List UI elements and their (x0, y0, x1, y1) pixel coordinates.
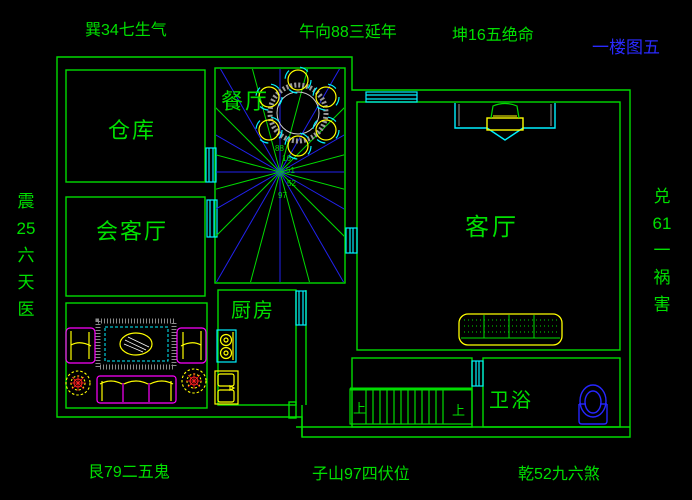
stove (217, 330, 236, 362)
sheet-title: 一楼图五 (592, 33, 660, 58)
compass-label-xun: 巽34七生气 (85, 16, 167, 40)
compass-label-gen: 艮79二五鬼 (88, 458, 170, 482)
reception-room-wall (66, 197, 205, 296)
compass-label-dui: 兑 61 一 祸 害 (650, 183, 674, 318)
door-bathroom (472, 361, 483, 386)
lounge-furniture (66, 321, 206, 403)
room-label-dining: 餐厅 (221, 84, 269, 116)
stairs-up-label-left: 上 (353, 398, 366, 417)
tv-unit (455, 103, 555, 140)
compass-label-wu: 午向88三延年 (299, 18, 397, 42)
room-label-living: 客厅 (465, 207, 519, 242)
plant-right (182, 369, 206, 393)
room-label-storage: 仓库 (108, 113, 156, 145)
compass-ray-fan (130, 22, 430, 322)
armchair-left (66, 328, 95, 363)
fan-number-52: 52 (287, 180, 296, 188)
stairs-up-label-right: 上 (452, 400, 465, 419)
compass-label-zi: 子山97四伏位 (312, 460, 410, 484)
fan-number-16: 16 (282, 155, 291, 163)
armchair-right (177, 328, 206, 363)
toilet (579, 385, 607, 424)
bench-planter (459, 314, 562, 345)
room-label-bathroom: 卫浴 (489, 384, 533, 413)
window-living-left (346, 228, 357, 253)
fan-number-51: 51 (286, 167, 295, 175)
window-living-top (366, 92, 417, 102)
plant-left (66, 371, 90, 395)
cad-floorplan-screen: { "title": "一楼图五", "compass": { "top_lef… (0, 0, 692, 500)
compass-label-qian: 乾52九六煞 (518, 460, 600, 484)
compass-label-kun: 坤16五绝命 (452, 21, 534, 45)
floor-plan-drawing (0, 0, 692, 500)
sofa (97, 376, 176, 403)
window-kitchen-right (296, 291, 306, 325)
rug (98, 321, 174, 367)
compass-label-zhen: 震 25 六 天 医 (14, 188, 38, 323)
room-label-kitchen: 厨房 (231, 294, 275, 323)
tv-base (487, 118, 523, 130)
fan-number-88: 88 (275, 145, 284, 153)
room-label-reception: 会客厅 (96, 214, 168, 246)
fan-number-97: 97 (278, 192, 287, 200)
